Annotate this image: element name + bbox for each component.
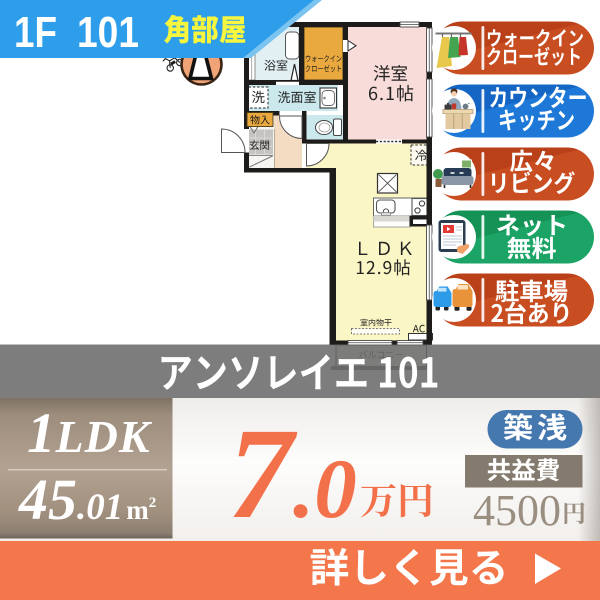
- svg-text:4500: 4500: [473, 486, 561, 535]
- svg-text:1LDK: 1LDK: [27, 402, 153, 465]
- svg-text:1F: 1F: [14, 8, 57, 57]
- svg-text:101: 101: [77, 8, 139, 57]
